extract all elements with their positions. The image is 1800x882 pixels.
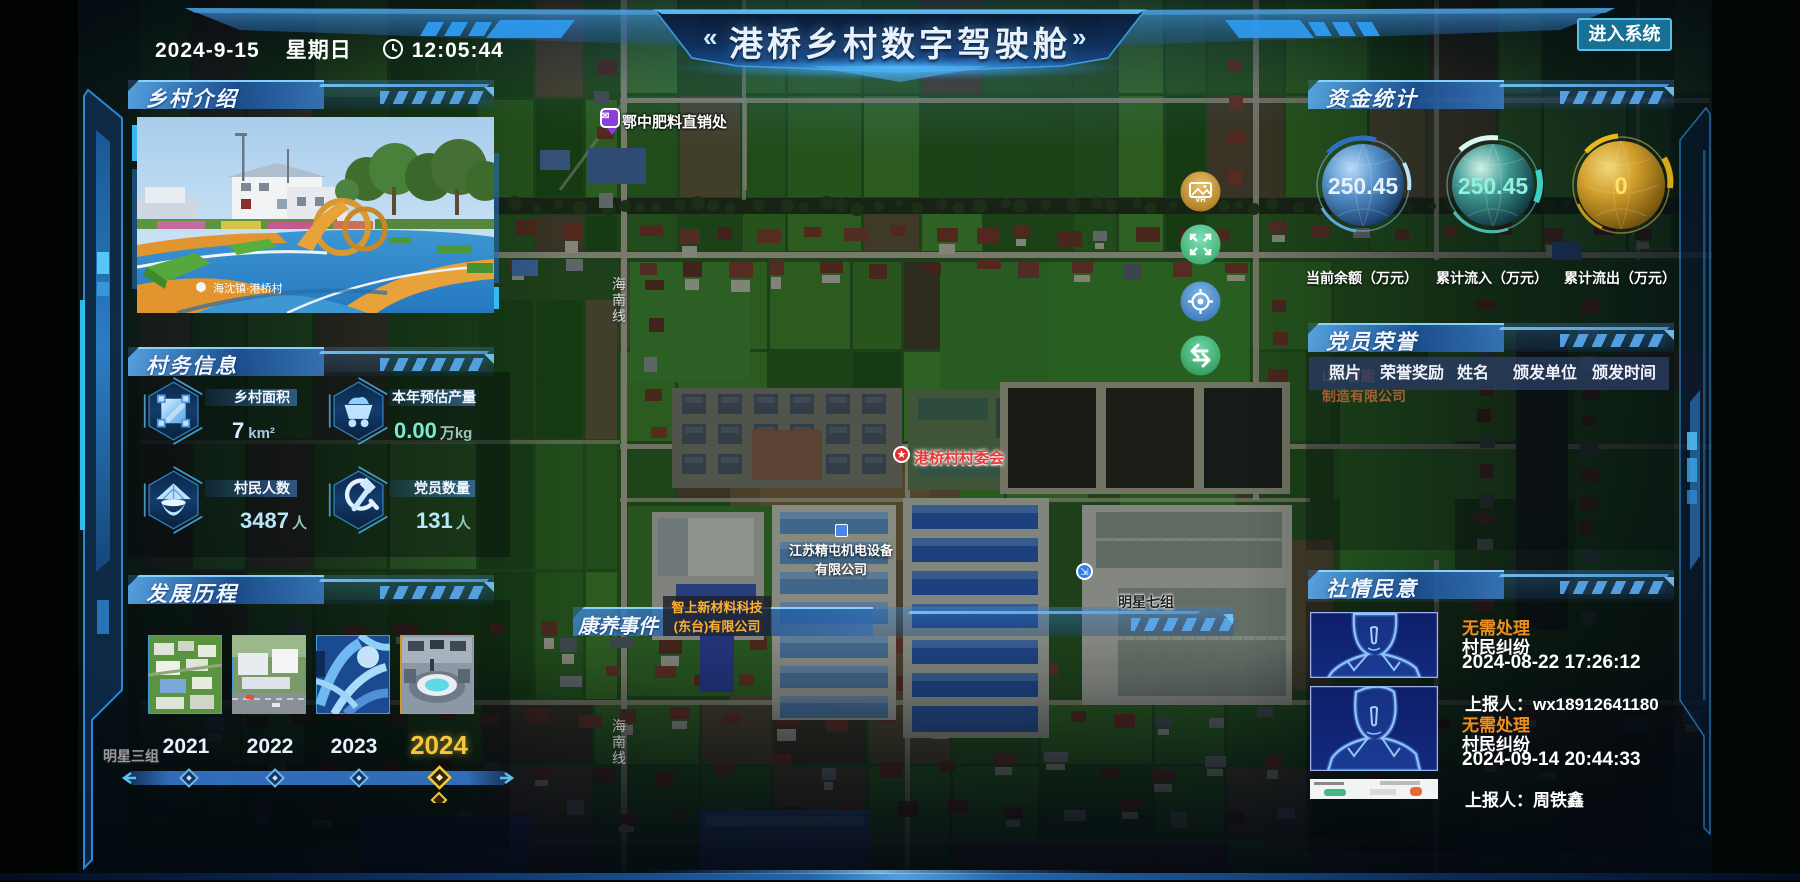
svg-text:250.45: 250.45 — [1328, 173, 1399, 199]
svg-text:0: 0 — [1614, 173, 1627, 200]
svg-text:海沈镇·港桥村: 海沈镇·港桥村 — [213, 281, 283, 295]
svg-text:250.45: 250.45 — [1458, 173, 1529, 199]
svg-text:VR: VR — [1195, 195, 1206, 204]
